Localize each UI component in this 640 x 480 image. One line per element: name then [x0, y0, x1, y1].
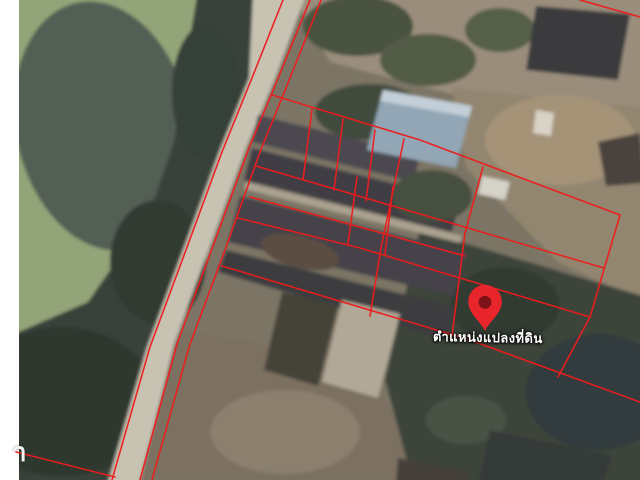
- parcel-location-label: ตำแหน่งแปลงที่ดิน: [433, 326, 543, 349]
- satellite-imagery: [0, 0, 640, 480]
- tree-clump-top-2: [380, 34, 476, 86]
- satellite-map-image: [0, 0, 640, 480]
- pin-hole: [479, 296, 492, 309]
- field-light-patch: [210, 390, 360, 474]
- roof-top-right: [526, 6, 630, 80]
- map-canvas[interactable]: ตำแหน่งแปลงที่ดิน า: [0, 0, 640, 480]
- tree-clump-mid: [392, 170, 472, 222]
- white-truck: [533, 110, 554, 136]
- left-white-strip: [0, 0, 19, 480]
- tree-clump-top-3: [465, 8, 535, 52]
- watermark-text-fragment: า: [12, 432, 27, 473]
